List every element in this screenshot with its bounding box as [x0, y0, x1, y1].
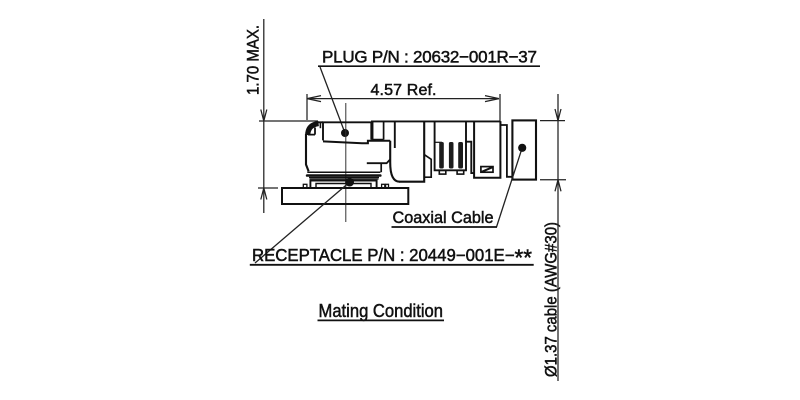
svg-text:PLUG P/N : 20632−001R−37: PLUG P/N : 20632−001R−37	[322, 48, 537, 67]
svg-text:Coaxial Cable: Coaxial Cable	[393, 208, 494, 227]
svg-text:Mating Condition: Mating Condition	[319, 301, 444, 321]
svg-text:1.70 MAX.: 1.70 MAX.	[245, 25, 263, 95]
svg-text:4.57 Ref.: 4.57 Ref.	[371, 82, 437, 99]
